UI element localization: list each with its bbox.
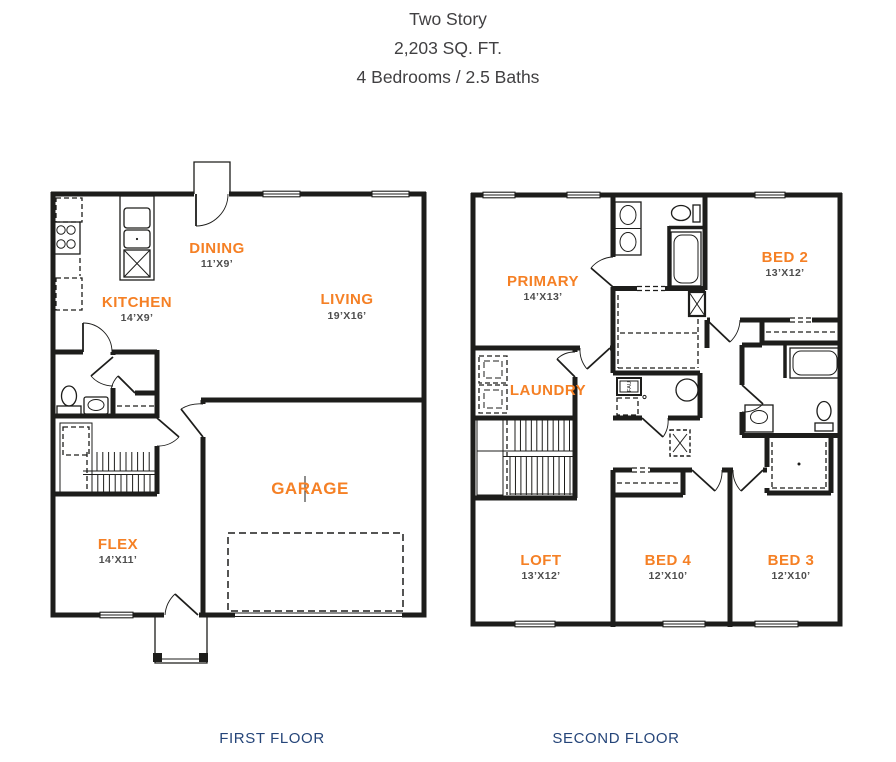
- stairs-second-floor: [477, 418, 575, 495]
- stairs-first-floor: [60, 423, 157, 493]
- sliding-doors: [632, 284, 812, 475]
- room-label-bed3: BED 3: [768, 552, 815, 569]
- plan-header: Two Story 2,203 SQ. FT. 4 Bedrooms / 2.5…: [0, 5, 896, 92]
- range: [54, 222, 80, 254]
- room-label-dining: DINING: [189, 240, 245, 257]
- garage-door-dashed: [228, 533, 403, 611]
- plan-beds-baths: 4 Bedrooms / 2.5 Baths: [0, 63, 896, 92]
- first-floor-plan: DINING 11’X9’ KITCHEN 14’X9’ LIVING 19’X…: [40, 150, 440, 680]
- under-stair-closet: [63, 427, 89, 455]
- room-label-kitchen: KITCHEN: [102, 294, 172, 311]
- linen-box: [689, 292, 705, 316]
- water-heater: [676, 379, 698, 401]
- washer: [479, 356, 507, 383]
- first-floor-labels: DINING 11’X9’ KITCHEN 14’X9’ LIVING 19’X…: [98, 240, 374, 566]
- tub: [790, 348, 840, 378]
- toilet: [62, 386, 77, 406]
- porch-column: [199, 653, 208, 662]
- plan-title: Two Story: [0, 5, 896, 34]
- kitchen-door: [83, 323, 112, 352]
- room-label-loft: LOFT: [520, 552, 561, 569]
- dryer: [479, 385, 507, 413]
- window: [100, 611, 133, 620]
- room-dims-primary: 14’X13’: [524, 291, 563, 303]
- room-label-garage: GARAGE: [271, 479, 349, 498]
- back-stoop: [194, 162, 230, 194]
- kitchen-fixtures: [54, 196, 154, 310]
- primary-closet: [618, 292, 705, 368]
- sink-vanity: [745, 405, 773, 432]
- window: [755, 191, 785, 200]
- room-dims-flex: 14’X11’: [99, 554, 137, 566]
- room-dims-bed4: 12’X10’: [649, 570, 688, 582]
- room-label-bed2: BED 2: [762, 249, 809, 266]
- back-door: [196, 194, 228, 226]
- porch-column: [153, 653, 162, 662]
- mechanical-room: FAU: [617, 378, 698, 415]
- toilet: [672, 205, 701, 222]
- plan-sqft: 2,203 SQ. FT.: [0, 34, 896, 63]
- kitchen-island: [120, 196, 154, 280]
- second-floor-title: SECOND FLOOR: [516, 730, 716, 747]
- attic-access-box: [670, 430, 690, 456]
- bed3-closet: [772, 442, 826, 488]
- room-dims-loft: 13’X12’: [522, 570, 561, 582]
- window: [483, 191, 515, 200]
- tub: [671, 232, 701, 286]
- first-floor-title: FIRST FLOOR: [172, 730, 372, 747]
- fau-unit: FAU: [617, 378, 646, 399]
- pantry: [56, 278, 82, 310]
- bed2-door: [707, 320, 740, 342]
- floorplan-page: Two Story 2,203 SQ. FT. 4 Bedrooms / 2.5…: [0, 0, 896, 762]
- room-label-living: LIVING: [320, 291, 373, 308]
- window: [663, 620, 705, 629]
- room-label-bed4: BED 4: [645, 552, 692, 569]
- powder-door: [91, 357, 113, 386]
- bed3-door: [733, 470, 763, 491]
- sink-basin: [124, 208, 150, 228]
- fau-label: FAU: [627, 381, 633, 392]
- powder-room-fixtures: [57, 386, 108, 415]
- fau-platform: [617, 398, 638, 415]
- room-label-laundry: LAUNDRY: [510, 382, 586, 399]
- bed4-door: [692, 470, 722, 491]
- room-dims-bed2: 13’X12’: [766, 267, 805, 279]
- toilet: [815, 402, 833, 432]
- window: [263, 190, 300, 199]
- room-dims-kitchen: 14’X9’: [121, 312, 154, 324]
- second-floor-plan: FAU: [465, 180, 855, 640]
- hall-bath-fixtures: [745, 348, 840, 432]
- room-dims-dining: 11’X9’: [201, 258, 233, 270]
- laundry-fixtures: [479, 356, 507, 413]
- window: [372, 190, 409, 199]
- front-porch: [153, 617, 208, 663]
- window: [567, 191, 600, 200]
- primary-door: [580, 348, 610, 369]
- primary-bath-door: [591, 257, 613, 287]
- window: [755, 620, 798, 629]
- double-vanity: [615, 202, 641, 255]
- hall-door: [157, 418, 179, 446]
- room-dims-bed3: 12’X10’: [772, 570, 811, 582]
- room-label-flex: FLEX: [98, 536, 138, 553]
- laundry-door: [557, 352, 575, 377]
- room-label-primary: PRIMARY: [507, 273, 579, 290]
- garage-entry-door: [181, 404, 203, 437]
- window: [515, 620, 555, 629]
- refrigerator: [56, 198, 82, 222]
- primary-bath-fixtures: [615, 202, 701, 286]
- room-dims-living: 19’X16’: [328, 310, 367, 322]
- mechanical-door: [642, 418, 668, 437]
